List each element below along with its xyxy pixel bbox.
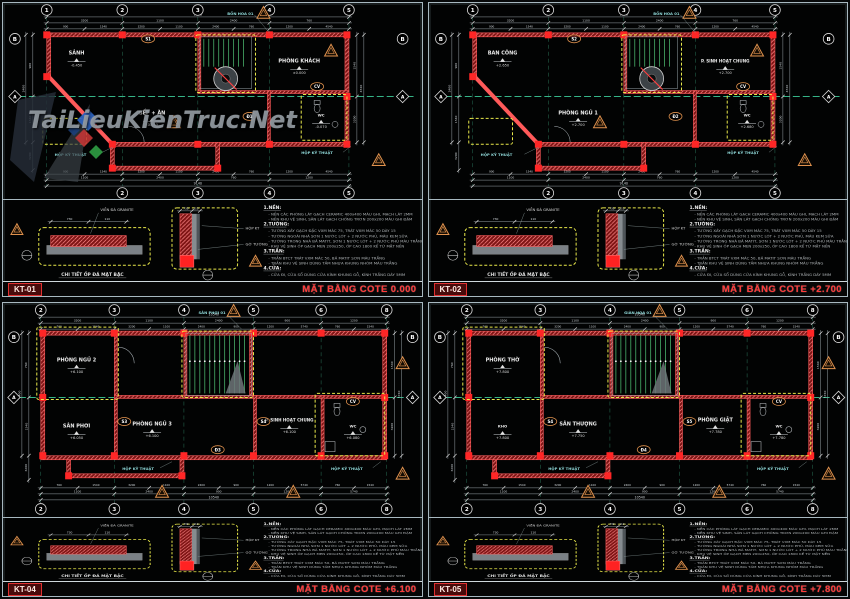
elevation-marker: +6.100 <box>280 425 298 434</box>
plan-text: 760 <box>249 170 255 174</box>
door-window-tag: S4 <box>543 418 556 426</box>
plan-text: 4 <box>607 308 611 314</box>
dimension-line: 7601540320011002400900120057407601540 <box>38 483 390 489</box>
plan-text: Đ4 <box>640 447 646 452</box>
plan-text: 3200 <box>563 24 570 28</box>
plan-text: 1540 <box>367 324 374 328</box>
room-label: PHÒNG THỜ+7.800 <box>485 356 519 374</box>
plan-text: S5 <box>686 419 692 424</box>
plan-text: 900 <box>284 318 290 322</box>
door-swing <box>128 126 144 142</box>
plan-text: A <box>401 94 405 100</box>
plan-text: 5 <box>347 8 351 14</box>
note-line: - TƯỜNG XÂY GẠCH ĐẶC VXM MÁC 75, TRÁT VX… <box>694 540 821 544</box>
plan-text: A <box>13 94 17 100</box>
grid-bubble: 5 <box>769 5 780 16</box>
plan-text: 730 <box>67 217 73 221</box>
plan-text: 1540 <box>518 324 525 328</box>
plan-text: P. SINH HOẠT CHUNG <box>265 418 314 423</box>
room-label: P. SINH HOẠT CHUNG+6.100 <box>265 418 314 435</box>
plan-text: 760 <box>732 18 738 22</box>
dimension-line: 2400 <box>17 330 23 459</box>
plan-text: 5740 <box>350 489 358 493</box>
plan-text: 3200 <box>81 18 89 22</box>
plan-text: 5 <box>772 8 776 14</box>
plan-text: 2 <box>464 507 468 513</box>
warning-triangle-icon <box>822 357 835 369</box>
grid-bubble: 5 <box>344 5 355 16</box>
elevation-marker: +6.100 <box>143 429 161 438</box>
elevation-marker: +6.050 <box>68 431 86 440</box>
dimension-line: 730110 <box>177 523 203 528</box>
plan-text: Đ1 <box>246 114 252 119</box>
plan-text: 5740 <box>301 324 308 328</box>
plan-text: 6 <box>319 308 323 314</box>
dimension-line: 2400 <box>21 32 27 145</box>
note-heading: 1.NỀN: <box>689 202 707 211</box>
elevation-marker: +7.800 <box>493 365 511 374</box>
grid-bubble: 3 <box>109 305 120 316</box>
plan-text: 3 <box>621 191 625 197</box>
stair <box>611 333 677 395</box>
plan-text: CHI TIẾT ỐP ĐÁ MẶT BẬC <box>61 573 124 578</box>
grid-bubble: 6 <box>316 504 327 515</box>
column <box>465 452 472 459</box>
detail-drawing-duct: 730110HỘP KTGỜ TƯỜNG <box>597 523 693 581</box>
grid-bubble: B <box>435 33 446 44</box>
plan-text: A <box>438 395 442 401</box>
callout-label: HỘP KỸ THUẬT <box>548 462 598 471</box>
title-bar: KT-01 MẶT BẰNG COTE 0.000 <box>3 281 422 296</box>
note-heading: 3.TRẦN: <box>263 556 284 560</box>
door-window-tag: S3 <box>118 418 131 426</box>
plan-text: 110 <box>619 523 625 526</box>
plan-text: 3200 <box>454 152 458 160</box>
warning-triangle-icon <box>250 255 262 266</box>
floor-plan-canvas: 7601540320011002400900120057407601540320… <box>429 303 848 517</box>
detail-drawing-step: 730110VIỀN ĐÁ GRANITECHI TIẾT ỐP ĐÁ MẶT … <box>22 207 150 278</box>
plan-text: 730 <box>492 217 498 221</box>
door-swing <box>544 347 560 363</box>
dimension-line: 15403200 <box>778 32 784 145</box>
column <box>691 141 698 148</box>
grid-bubble: 8 <box>807 504 818 515</box>
plan-text: 3200 <box>554 483 561 487</box>
dimension-line: 9140 <box>44 181 352 187</box>
notes-panel: 730110VIỀN ĐÁ GRANITECHI TIẾT ỐP ĐÁ MẶT … <box>429 517 848 581</box>
note-heading: 1.NỀN: <box>263 521 281 525</box>
plan-text: 3 <box>621 8 625 14</box>
plan-text: CHI TIẾT ỐP ĐÁ MẶT BẬC <box>487 573 550 578</box>
grid-bubble: 5 <box>674 504 685 515</box>
detail-drawing-step: 730110VIỀN ĐÁ GRANITECHI TIẾT ỐP ĐÁ MẶT … <box>447 523 575 579</box>
plan-text: 1200 <box>286 24 293 28</box>
dimension-line: 730110 <box>48 217 130 223</box>
dimension-line: 7601540320011002400900120057407601540 <box>463 324 815 330</box>
plan-text: 760 <box>656 176 662 180</box>
plan-text: HỘP KT <box>246 226 260 231</box>
warning-triangle-icon <box>675 561 687 569</box>
plan-text: -0.050 <box>146 123 158 127</box>
note-line: - TRẦN BTCT TRÁT VXM MÁC 50, BẢ MATIT SƠ… <box>268 561 385 565</box>
plan-text: 9140 <box>619 181 627 185</box>
plan-text: HỘP KỸ THUẬT <box>548 466 580 471</box>
column <box>620 141 627 148</box>
plan-text: 110 <box>193 206 199 210</box>
door-window-tag: Đ2 <box>669 112 682 120</box>
plan-text: SÂN PHƠI <box>63 423 90 430</box>
plan-text: ±0.000 <box>293 71 307 75</box>
floor-plan-canvas: 9001540320011002400760120045403200110024… <box>3 3 422 199</box>
plan-text: 1200 <box>711 170 718 174</box>
plan-text: GỜ TƯỜNG <box>671 550 694 554</box>
grid-diamond-bubble: A <box>396 90 408 102</box>
plan-text: 5740 <box>823 391 827 399</box>
dimension-line: 7601540320011002400900120057407601540 <box>463 483 815 489</box>
highlight-box <box>468 118 512 144</box>
plan-text: 730 <box>183 523 189 526</box>
grid-bubble: 2 <box>542 5 553 16</box>
highlight-box <box>43 118 87 144</box>
plan-text: B <box>410 335 414 341</box>
plan-text: 4540 <box>785 85 789 93</box>
column <box>250 452 257 459</box>
column <box>65 472 72 479</box>
plan-text: 4 <box>693 8 697 14</box>
column <box>266 141 273 148</box>
warning-triangle-icon <box>436 224 448 235</box>
plan-text: 3200 <box>128 324 135 328</box>
plan-text: 4 <box>267 191 271 197</box>
plan-text: HỘP KT <box>246 538 261 542</box>
dimension-line: 730110 <box>473 531 555 536</box>
column <box>465 330 472 337</box>
grid-diamond-bubble: A <box>406 391 418 403</box>
note-line: - TRẦN KHU VỆ SINH DÙNG TẤM NHỰA KHUNG N… <box>694 260 823 265</box>
plan-text: 2400 <box>230 18 238 22</box>
plan-text: PHÒNG KHÁCH <box>278 58 320 65</box>
plan-text: PHÒNG GIẶT <box>697 417 733 424</box>
plan-text: 3200 <box>499 318 507 322</box>
grid-bubble: 2 <box>461 504 472 515</box>
plan-text: 1100 <box>506 176 514 180</box>
plan-text: CV <box>775 399 782 404</box>
plan-text: 1200 <box>692 324 699 328</box>
callout-label: HỘP KỸ THUẬT <box>480 147 538 157</box>
plan-text: 2 <box>546 191 550 197</box>
plan-text: 4 <box>182 308 186 314</box>
general-notes: 1.NỀN:- NỀN CÁC PHÒNG LÁT GẠCH CERAMIC 4… <box>689 202 847 277</box>
plan-text: 1200 <box>267 324 274 328</box>
plan-text: GỜ TƯỜNG <box>246 550 269 554</box>
plan-text: S4 <box>261 419 267 424</box>
plan-text: 3200 <box>352 116 356 124</box>
note-line: - NỀN CÁC PHÒNG LÁT GẠCH CERAMIC 400x400… <box>268 527 412 531</box>
plan-text: 6 <box>319 507 323 513</box>
note-line: - NỀN CÁC PHÒNG LÁT GẠCH CERAMIC 400x400… <box>694 527 838 531</box>
plan-text: 760 <box>335 324 341 328</box>
notes-svg: 730110VIỀN ĐÁ GRANITECHI TIẾT ỐP ĐÁ MẶT … <box>3 200 422 281</box>
plan-text: 3200 <box>390 423 394 431</box>
warning-triangle-icon <box>798 154 811 166</box>
note-line: - TƯỜNG TRONG NHÀ BẢ MATIT, SƠN 1 NƯỚC L… <box>268 548 421 552</box>
plan-text: 1540 <box>525 24 532 28</box>
plan-text: A <box>12 395 16 401</box>
plan-text: 760 <box>450 362 454 368</box>
grid-diamond-bubble: A <box>9 90 21 102</box>
plan-text: CHI TIẾT ỐP ĐÁ MẶT BẬC <box>487 270 549 278</box>
grid-bubble: 3 <box>618 188 629 199</box>
grid-bubble: 1 <box>41 5 52 16</box>
note-line: - TƯỜNG XÂY GẠCH ĐẶC VXM MÁC 75, TRÁT VX… <box>268 540 395 544</box>
plan-text: 1200 <box>350 318 358 322</box>
sheet-title: MẶT BẰNG COTE +6.100 <box>296 584 416 595</box>
plan-text: B <box>438 37 442 43</box>
plan-text: 4 <box>693 191 697 197</box>
plan-text: 3 <box>196 191 200 197</box>
column <box>180 452 187 459</box>
plan-text: 3200 <box>138 24 145 28</box>
warning-triangle-icon <box>396 467 409 479</box>
plan-text: 5740 <box>397 391 401 399</box>
plan-text: PHÒNG THỜ <box>485 356 519 363</box>
grid-bubble: 6 <box>741 305 752 316</box>
notes-svg: 730110VIỀN ĐÁ GRANITECHI TIẾT ỐP ĐÁ MẶT … <box>429 200 848 281</box>
dimension-line: 730110 <box>473 217 555 223</box>
plan-text: HỘP KỸ THUẬT <box>480 152 512 157</box>
dimension-line: 7601540320011002400900120057407601540 <box>38 324 390 330</box>
plan-text: 900 <box>710 318 716 322</box>
note-heading: 2.TƯỜNG: <box>263 221 289 228</box>
note-line: - CỬA ĐI, CỬA SỔ DÙNG CỬA KÍNH KHUNG GỖ,… <box>268 272 405 277</box>
room-label: PHÒNG NGỦ 3+6.100 <box>132 420 172 439</box>
plan-text: 760 <box>674 170 680 174</box>
column <box>534 141 541 148</box>
column <box>318 330 325 337</box>
column <box>111 330 118 337</box>
note-heading: 4.CỬA: <box>689 569 707 573</box>
plan-text: 1100 <box>145 318 153 322</box>
plan-text: GIÀN HOA 01 <box>624 310 652 315</box>
dimension-line: 10540 <box>463 495 815 501</box>
door-window-tag: Đ1 <box>243 112 256 120</box>
plan-text: Đ3 <box>215 447 221 452</box>
plan-text: 1540 <box>100 170 107 174</box>
plan-text: 900 <box>454 63 458 69</box>
plan-text: 1540 <box>92 483 99 487</box>
plan-text: 5 <box>677 507 681 513</box>
plan-text: S1 <box>145 36 151 41</box>
drawing-sheet-kt02: 9001540320011002400760120045403200110024… <box>428 2 849 297</box>
elevation-marker: +2.650 <box>493 58 511 67</box>
plan-text: 1540 <box>816 361 820 369</box>
plan-text: BẾP + ĂN <box>139 108 165 116</box>
grid-bubble: 2 <box>117 188 128 199</box>
column <box>194 141 201 148</box>
warning-triangle-icon <box>250 561 262 569</box>
plan-text: 900 <box>28 63 32 69</box>
note-heading: 2.TƯỜNG: <box>689 221 715 228</box>
plan-text: 900 <box>659 324 665 328</box>
callout-label: HỘP KỸ THUẬT <box>301 146 351 155</box>
room-label: SÂN PHƠI+6.050 <box>63 423 90 441</box>
plan-text: 900 <box>233 483 239 487</box>
floor-plan-canvas: 7601540320011002400900120057407601540320… <box>3 303 422 517</box>
plan-text: 8 <box>385 308 389 314</box>
plan-text: HỘP KT <box>671 226 685 231</box>
elevation-marker: -0.450 <box>68 58 86 67</box>
plan-text: 900 <box>233 324 239 328</box>
plan-text: 110 <box>619 206 625 210</box>
plan-text: +7.800 <box>495 370 509 374</box>
plan-text: 900 <box>659 483 665 487</box>
column <box>469 73 476 80</box>
plan-text: VIỀN ĐÁ GRANITE <box>526 523 559 527</box>
warning-triangle-icon <box>750 44 763 56</box>
warning-triangle-icon <box>822 467 835 479</box>
dimension-line: 4540 <box>359 32 365 145</box>
column <box>769 141 776 148</box>
notes-panel: 730110VIỀN ĐÁ GRANITECHI TIẾT ỐP ĐÁ MẶT … <box>3 517 422 581</box>
warning-triangle-icon <box>325 44 338 56</box>
plan-text: +7.780 <box>708 430 722 434</box>
detail-drawing-duct: 730110HỘP KTGỜ TƯỜNG <box>172 206 268 280</box>
plan-text: B <box>12 335 16 341</box>
plan-text: 1200 <box>267 483 274 487</box>
plan-text: 760 <box>24 362 28 368</box>
dimension-line: 90015403200 <box>28 32 34 173</box>
plan-text: 2400 <box>21 85 25 93</box>
notes-panel: 730110VIỀN ĐÁ GRANITECHI TIẾT ỐP ĐÁ MẶT … <box>429 199 848 281</box>
plan-text: 5740 <box>726 483 733 487</box>
note-heading: 3.TRẦN: <box>689 556 710 560</box>
dimension-line: 5740 <box>397 330 403 459</box>
column <box>640 165 647 172</box>
stair <box>200 37 252 91</box>
plan-text: 760 <box>674 24 680 28</box>
callout-label: HỘP KỸ THUẬT <box>331 462 381 471</box>
plan-text: 8 <box>810 507 814 513</box>
note-line: - TƯỜNG NGOÀI NHÀ SƠN 1 NƯỚC LÓT + 2 NƯỚ… <box>694 544 834 548</box>
plan-text: 1200 <box>731 176 739 180</box>
note-line: - KHU VỆ SINH ỐP GẠCH MEN 200x250, ỐP CA… <box>694 552 830 556</box>
plan-text: 2 <box>39 308 43 314</box>
plan-svg: 7601540320011002400900120057407601540320… <box>429 303 848 517</box>
plan-text: 1100 <box>156 18 164 22</box>
plan-text: 2400 <box>582 176 590 180</box>
dimension-line: 15403200 <box>390 330 396 459</box>
grid-bubble: B <box>434 332 445 343</box>
warning-triangle-icon <box>653 305 666 317</box>
grid-bubble: 3 <box>534 504 545 515</box>
plan-text: 1100 <box>163 483 170 487</box>
dimension-line: 9140 <box>469 181 777 187</box>
dimension-line: 15403200 <box>352 32 358 145</box>
elevation-marker: +7.780 <box>706 425 724 434</box>
plan-text: 5 <box>252 507 256 513</box>
grid-bubble: 4 <box>264 188 275 199</box>
plan-text: 110 <box>105 217 111 221</box>
plan-text: 760 <box>760 324 766 328</box>
room-label: BẾP + ĂN-0.050 <box>139 108 165 127</box>
note-line: - TRẦN KHU VỆ SINH DÙNG TẤM NHỰA KHUNG N… <box>268 565 397 569</box>
plan-text: 8 <box>385 507 389 513</box>
column <box>266 31 273 38</box>
plan-text: 2400 <box>198 483 205 487</box>
plan-text: 2400 <box>638 24 645 28</box>
dimension-line: 4540 <box>785 32 791 145</box>
plan-text: 1100 <box>175 24 182 28</box>
sheet-title: MẶT BẰNG COTE 0.000 <box>302 284 416 295</box>
column <box>109 165 116 172</box>
plan-text: Đ2 <box>672 114 678 119</box>
dimension-line: 5740 <box>823 330 829 459</box>
plan-text: +2.700 <box>571 123 585 127</box>
plan-text: 1540 <box>792 324 799 328</box>
plan-text: 1100 <box>589 324 596 328</box>
plan-text: PHÒNG NGỦ 2 <box>57 355 97 363</box>
plan-text: WC <box>775 424 782 429</box>
plan-text: HỘP KT <box>671 538 686 542</box>
plan-text: BỒN HOA 01 <box>227 11 254 16</box>
plan-text: PHÒNG NGỦ 1 <box>558 108 598 116</box>
room-label: PHÒNG NGỦ 1+2.700 <box>558 108 598 127</box>
plan-text: +6.100 <box>70 370 84 374</box>
elevation-marker: +6.080 <box>344 431 362 440</box>
plan-text: 2400 <box>623 483 630 487</box>
plan-text: HỘP KỸ THUẬT <box>301 150 333 155</box>
drawing-sheet-kt05: 7601540320011002400900120057407601540320… <box>428 302 849 597</box>
column <box>676 452 683 459</box>
room-label: WC-0.070 <box>312 113 330 129</box>
plan-text: +7.800 <box>495 436 509 440</box>
plan-text: 1100 <box>499 489 507 493</box>
plan-text: 1540 <box>24 423 28 431</box>
elevation-marker: +7.800 <box>493 431 511 440</box>
door-swing <box>554 126 570 142</box>
general-notes: 1.NỀN:- NỀN CÁC PHÒNG LÁT GẠCH CERAMIC 4… <box>263 202 421 277</box>
door-window-tag: CV <box>311 83 324 91</box>
plan-text: WC <box>743 113 750 117</box>
plumbing-fixtures <box>751 403 792 451</box>
grid-bubble: B <box>833 332 844 343</box>
grid-bubble: 8 <box>807 305 818 316</box>
door-window-tag: CV <box>736 83 749 91</box>
plan-text: +6.100 <box>146 434 160 438</box>
column <box>39 330 46 337</box>
plan-text: 3200 <box>816 423 820 431</box>
stair <box>186 333 252 395</box>
plan-text: 1100 <box>74 489 82 493</box>
plan-text: 1540 <box>778 62 782 70</box>
note-heading: 1.NỀN: <box>689 521 707 525</box>
plan-text: 3200 <box>554 324 561 328</box>
sheet-title: MẶT BẰNG COTE +2.700 <box>722 284 842 295</box>
plan-text: 1100 <box>81 176 89 180</box>
plan-text: 1100 <box>601 24 608 28</box>
plan-text: +7.750 <box>571 434 585 438</box>
plan-text: 10540 <box>634 495 644 499</box>
plan-text: 5 <box>347 191 351 197</box>
callout-label: HỘP KỸ THUẬT <box>122 462 172 471</box>
grid-diamond-bubble: A <box>822 90 834 102</box>
plan-text: SẢNH <box>69 49 85 57</box>
dimension-line: 76015403200 <box>450 330 456 483</box>
plan-text: B <box>400 37 404 43</box>
plan-text: 760 <box>249 24 255 28</box>
plan-text: A <box>836 395 840 401</box>
plan-text: 3200 <box>506 18 514 22</box>
